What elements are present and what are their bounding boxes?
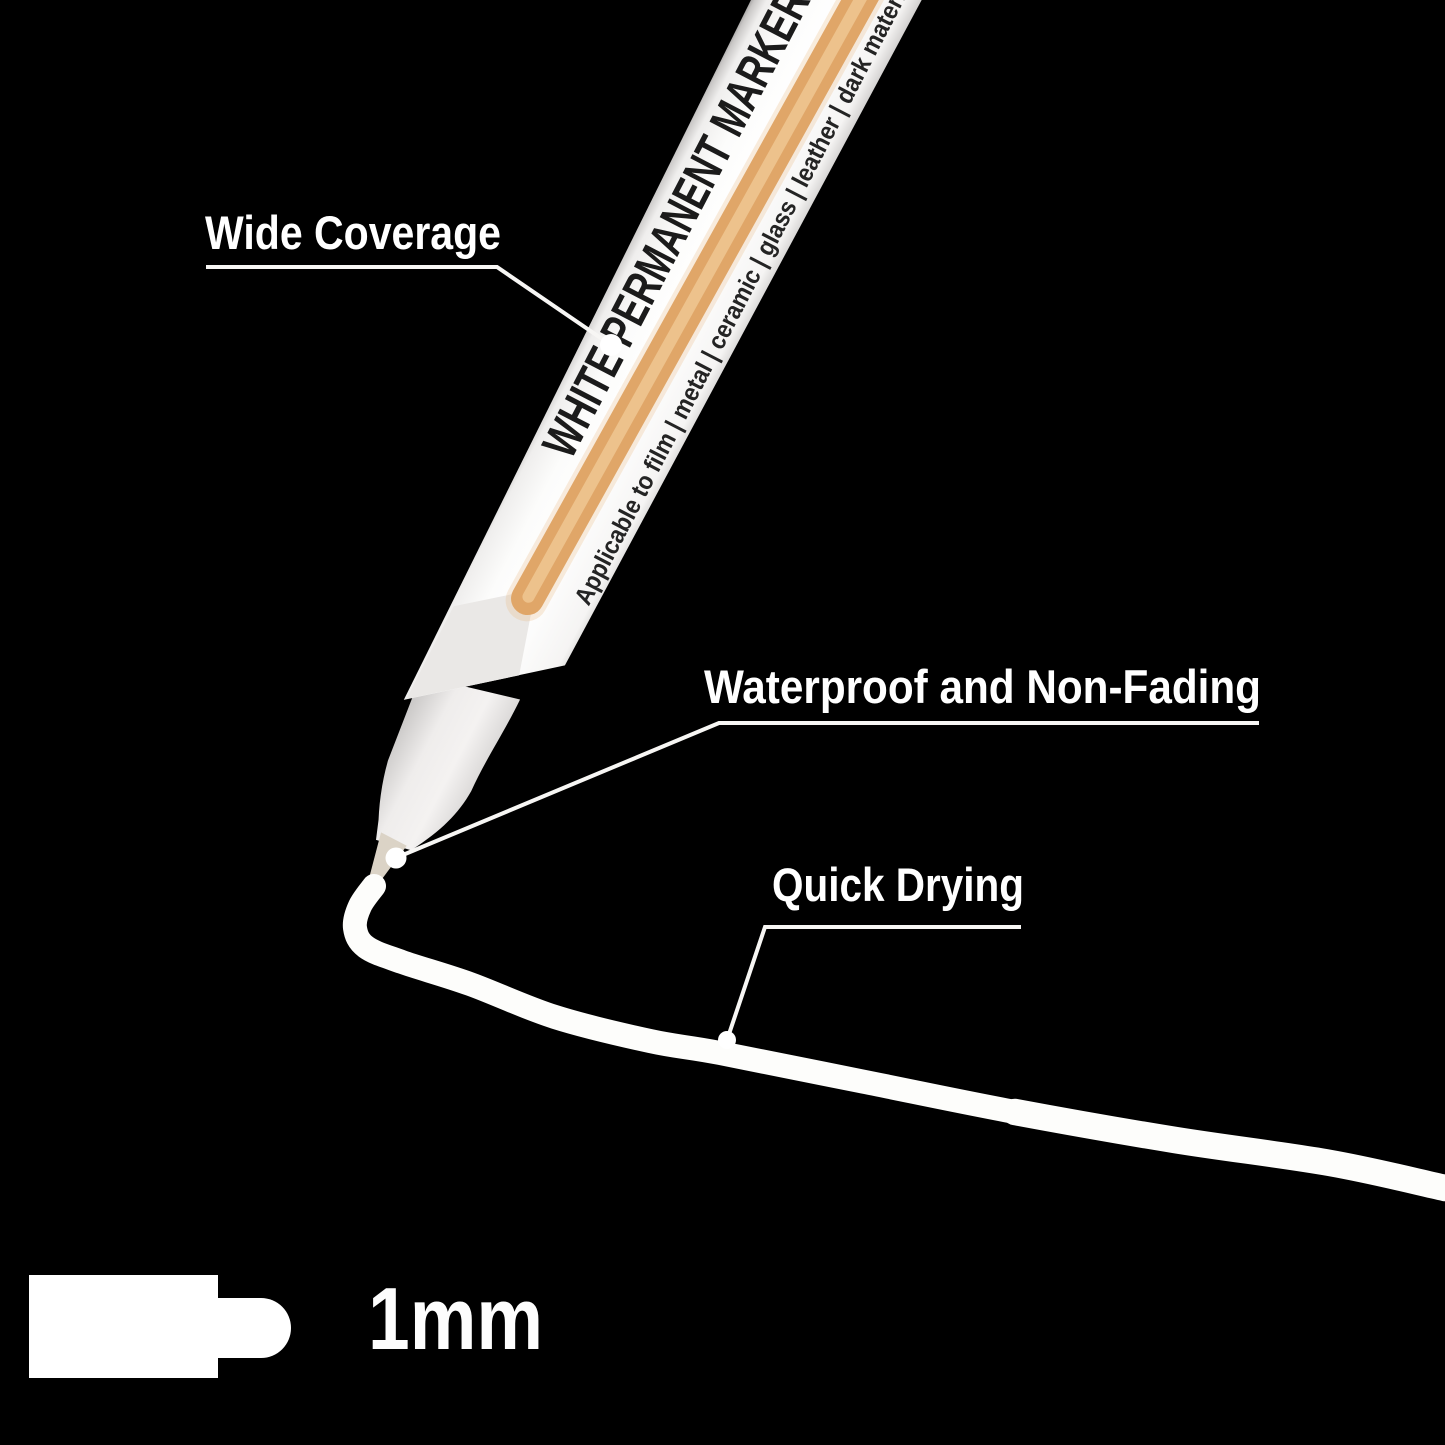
svg-text:Wide Coverage: Wide Coverage	[205, 206, 501, 259]
svg-text:1mm: 1mm	[368, 1269, 543, 1368]
svg-text:Quick Drying: Quick Drying	[772, 858, 1024, 911]
svg-text:Waterproof and Non-Fading: Waterproof and Non-Fading	[704, 660, 1261, 713]
